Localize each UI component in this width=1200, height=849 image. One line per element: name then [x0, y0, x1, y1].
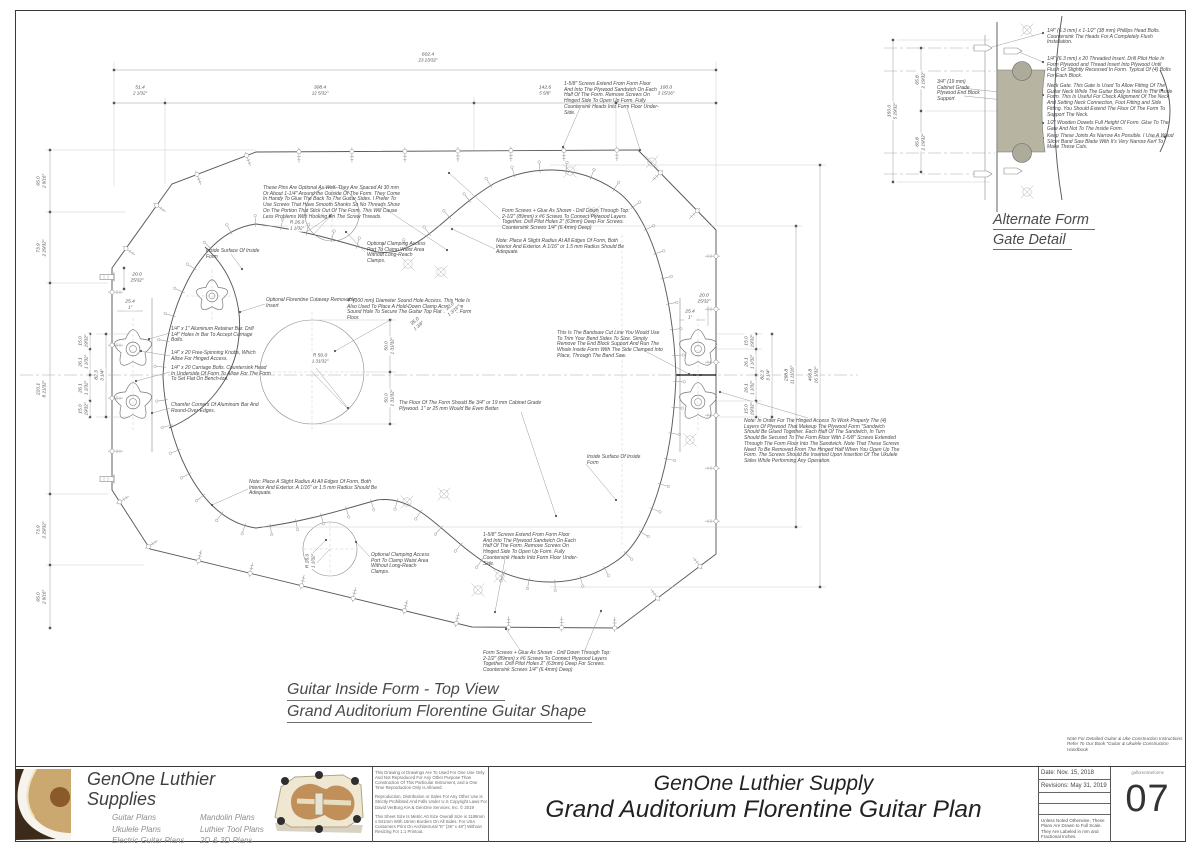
gate-detail-drawing	[974, 16, 1170, 212]
dimension-lines	[50, 40, 921, 628]
brand-name: GenOne Luthier Supplies	[72, 769, 278, 809]
plan-item: Electric Guitar Plans	[112, 835, 184, 847]
date-revision-block: Date: Nov. 15, 2018 Revisions: May 31, 2…	[1038, 767, 1110, 842]
detail-caption-line1: Alternate Form	[993, 212, 1095, 230]
main-caption-line1: Guitar Inside Form - Top View	[287, 681, 505, 701]
copyright-paragraph: This Sheet Size Is Metric A0 Size Overal…	[375, 814, 487, 834]
crosshair-markers	[401, 156, 697, 597]
plans-column-2: Mandolin Plans Luthier Tool Plans 2D & 3…	[200, 812, 264, 847]
drawing-linework	[0, 0, 1200, 849]
extension-lines	[46, 40, 1000, 587]
divider	[372, 767, 373, 842]
detail-caption: Alternate Form Gate Detail	[993, 212, 1095, 252]
title-block: GenOne Luthier Supplies Guitar Plans Uku…	[15, 766, 1185, 842]
plans-column-1: Guitar Plans Ukulele Plans Electric Guit…	[112, 812, 184, 847]
empty-row	[1038, 793, 1110, 804]
dowel-top	[1013, 62, 1032, 81]
gate-block	[997, 70, 1045, 152]
copyright-block: This Drawing or Drawings Are To Used For…	[375, 770, 487, 838]
plan-item: Ukulele Plans	[112, 824, 184, 836]
dimension-ticks	[49, 39, 922, 629]
brand-block: GenOne Luthier Supplies Guitar Plans Uku…	[72, 769, 278, 812]
plan-item: Luthier Tool Plans	[200, 824, 264, 836]
plan-item: Mandolin Plans	[200, 812, 264, 824]
brand-photo-guitar	[16, 769, 71, 840]
plan-title: Grand Auditorium Florentine Guitar Plan	[489, 796, 1038, 824]
sheet-number-block: gaflorentineforms 07	[1110, 767, 1185, 842]
plan-item: Guitar Plans	[112, 812, 184, 824]
form-inner-curve	[1055, 16, 1063, 200]
main-caption: Guitar Inside Form - Top View Grand Audi…	[287, 681, 592, 725]
handbook-note: Note For Detailed Guitar & Uke Construct…	[1067, 736, 1182, 752]
company-title: GenOne Luthier Supply	[489, 772, 1038, 796]
date-field: Date: Nov. 15, 2018	[1038, 767, 1110, 780]
neck-side-curve	[1160, 70, 1170, 152]
sheet-title-block: GenOne Luthier Supply Grand Auditorium F…	[489, 767, 1038, 842]
dowel-bottom	[1013, 144, 1032, 163]
main-caption-line2: Grand Auditorium Florentine Guitar Shape	[287, 703, 592, 723]
form-outline	[112, 150, 716, 628]
plan-item: 2D & 3D Plans	[200, 835, 264, 847]
copyright-paragraph: Reproduction, Distribution or Sales For …	[375, 794, 487, 809]
copyright-paragraph: This Drawing or Drawings Are To Used For…	[375, 770, 487, 790]
product-photo-form	[267, 769, 371, 840]
form-screws	[108, 146, 720, 632]
scale-note: Unless Noted Otherwise, These Plans Are …	[1038, 815, 1110, 840]
sheet-number: 07	[1110, 776, 1185, 822]
empty-row	[1038, 804, 1110, 815]
clamp-knobs	[114, 280, 716, 419]
plan-sheet: These Pins Are Optional As Well. They Ar…	[0, 0, 1200, 849]
detail-caption-line2: Gate Detail	[993, 232, 1072, 250]
florentine-insert-edge	[169, 247, 240, 428]
centerlines	[20, 48, 995, 575]
revisions-field: Revisions: May 31, 2019	[1038, 780, 1110, 793]
